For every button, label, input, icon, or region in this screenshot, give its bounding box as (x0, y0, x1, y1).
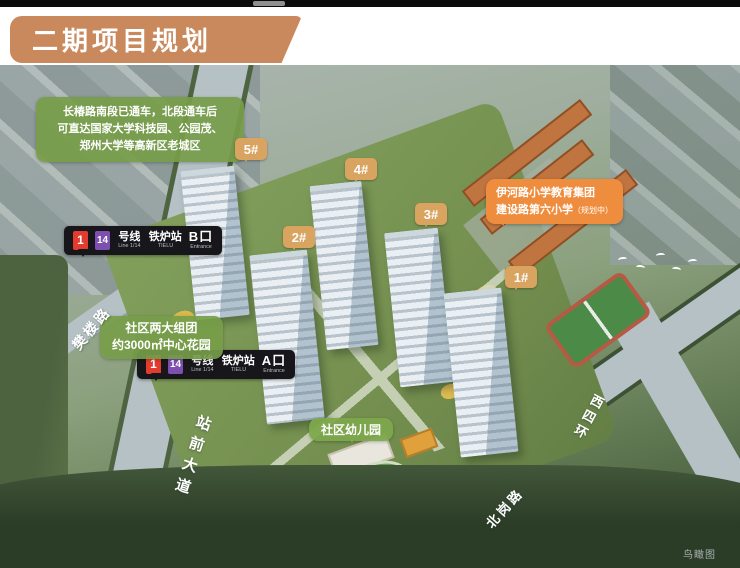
line-1-badge: 1 (73, 231, 88, 250)
top-bar (0, 0, 740, 7)
line-name: 号线 Line 1/14 (117, 231, 142, 250)
building-tag-4: 4# (345, 158, 377, 180)
station-label: 铁炉站 (149, 231, 182, 243)
city-blocks-right (610, 65, 740, 265)
station-name: 铁炉站 TIELU (222, 355, 255, 374)
top-bar-notch (253, 1, 285, 6)
building-tag-2: 2# (283, 226, 315, 248)
page-title-banner: 二期项目规划 (10, 16, 302, 63)
bird-icon (636, 265, 645, 271)
school-name: 建设路第六小学 (496, 204, 573, 216)
page-title: 二期项目规划 (32, 21, 212, 58)
school-note: （规划中） (573, 206, 613, 215)
bird-icon (672, 266, 682, 272)
exit-sublabel: Entrance (190, 245, 212, 251)
school-label-line1: 伊河路小学教育集团 (496, 185, 613, 202)
transit-note-line: 长椿路南段已通车，北段通车后 (44, 104, 236, 121)
line-label: 号线 (118, 231, 140, 243)
school-label-bubble: 伊河路小学教育集团 建设路第六小学（规划中） (486, 179, 623, 224)
station-sublabel: TIELU (231, 368, 246, 374)
station-name: 铁炉站 TIELU (149, 231, 182, 250)
view-caption: 鸟瞰图 (683, 546, 716, 561)
transit-note-line: 郑州大学等高新区老城区 (44, 138, 236, 155)
line-14-badge: 14 (95, 231, 110, 250)
kindergarten-label-bubble: 社区幼儿园 (309, 418, 393, 441)
garden-label-bubble: 社区两大组团 约3000㎡中心花园 (100, 316, 223, 359)
transit-note-line: 可直达国家大学科技园、公园茂、 (44, 121, 236, 138)
line-sublabel: Line 1/14 (118, 244, 140, 250)
exit-label: B口 (189, 230, 213, 244)
building-tag-5: 5# (235, 138, 267, 160)
line-sublabel: Line 1/14 (191, 368, 213, 374)
garden-label-line1: 社区两大组团 (112, 320, 211, 337)
metro-sign-exit-b: 1 14 号线 Line 1/14 铁炉站 TIELU B口 Entrance (64, 226, 222, 255)
school-label-line2: 建设路第六小学（规划中） (496, 202, 613, 219)
exit-name: B口 Entrance (189, 230, 213, 251)
building-tag-3: 3# (415, 203, 447, 225)
station-label: 铁炉站 (222, 355, 255, 367)
transit-note-bubble: 长椿路南段已通车，北段通车后 可直达国家大学科技园、公园茂、 郑州大学等高新区老… (36, 97, 244, 162)
station-sublabel: TIELU (158, 244, 173, 250)
exit-label: A口 (262, 354, 286, 368)
exit-sublabel: Entrance (263, 369, 285, 375)
exit-name: A口 Entrance (262, 354, 286, 375)
garden-label-line2: 约3000㎡中心花园 (112, 337, 211, 354)
building-tag-1: 1# (505, 266, 537, 288)
tree-band-bottom (0, 465, 740, 568)
